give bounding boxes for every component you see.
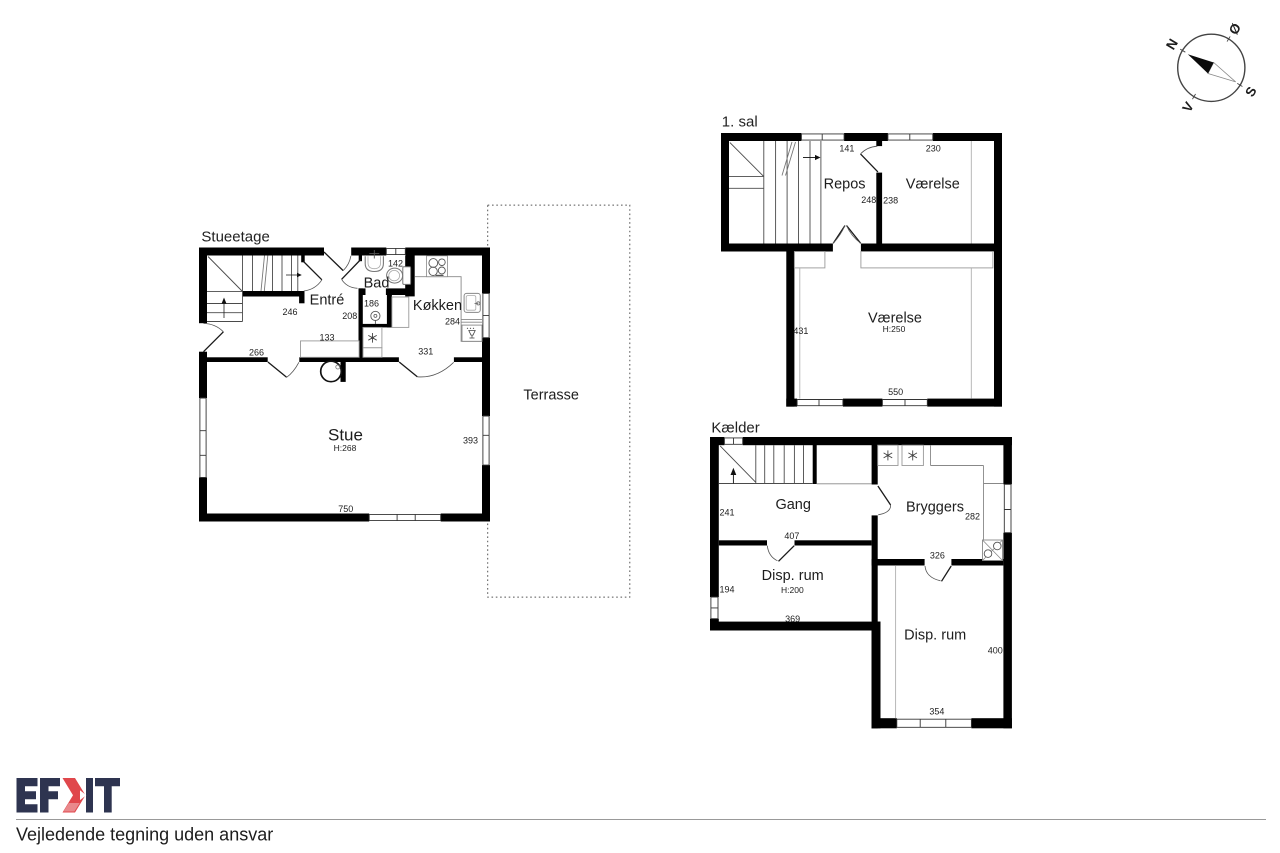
svg-text:238: 238 xyxy=(883,196,898,206)
svg-text:1. sal: 1. sal xyxy=(722,114,758,131)
svg-text:750: 750 xyxy=(338,504,353,514)
svg-text:326: 326 xyxy=(930,551,945,561)
svg-text:Stueetage: Stueetage xyxy=(201,229,269,246)
svg-text:Køkken: Køkken xyxy=(413,298,462,314)
svg-text:Bryggers: Bryggers xyxy=(906,500,964,516)
svg-text:266: 266 xyxy=(249,348,264,358)
svg-text:Værelse: Værelse xyxy=(906,177,960,193)
svg-text:Disp. rum: Disp. rum xyxy=(762,568,824,584)
svg-text:393: 393 xyxy=(463,436,478,446)
svg-text:284: 284 xyxy=(445,317,460,327)
svg-text:H:250: H:250 xyxy=(883,324,906,334)
svg-text:194: 194 xyxy=(719,585,734,595)
svg-text:246: 246 xyxy=(282,307,297,317)
svg-text:Kælder: Kælder xyxy=(711,420,759,437)
svg-text:Entré: Entré xyxy=(310,293,345,309)
svg-text:186: 186 xyxy=(364,299,379,309)
svg-text:230: 230 xyxy=(926,143,941,153)
svg-text:Vejledende tegning uden ansvar: Vejledende tegning uden ansvar xyxy=(16,825,273,845)
svg-text:331: 331 xyxy=(418,347,433,357)
svg-text:241: 241 xyxy=(719,507,734,517)
svg-text:Terrasse: Terrasse xyxy=(523,388,579,404)
svg-text:400: 400 xyxy=(988,646,1003,656)
svg-text:142: 142 xyxy=(388,258,403,268)
svg-text:248: 248 xyxy=(861,195,876,205)
svg-text:Disp. rum: Disp. rum xyxy=(904,628,966,644)
svg-text:431: 431 xyxy=(793,326,808,336)
svg-text:550: 550 xyxy=(888,387,903,397)
svg-text:Stue: Stue xyxy=(328,425,363,444)
svg-text:133: 133 xyxy=(319,332,334,342)
svg-text:Bad: Bad xyxy=(364,276,390,292)
svg-text:Gang: Gang xyxy=(775,497,810,513)
svg-text:141: 141 xyxy=(839,143,854,153)
svg-text:H:268: H:268 xyxy=(334,443,357,453)
svg-text:407: 407 xyxy=(784,531,799,541)
svg-text:H:200: H:200 xyxy=(781,585,804,595)
svg-text:369: 369 xyxy=(785,614,800,624)
svg-text:208: 208 xyxy=(342,311,357,321)
svg-text:354: 354 xyxy=(929,706,944,716)
svg-text:Repos: Repos xyxy=(824,177,866,193)
svg-text:282: 282 xyxy=(965,512,980,522)
